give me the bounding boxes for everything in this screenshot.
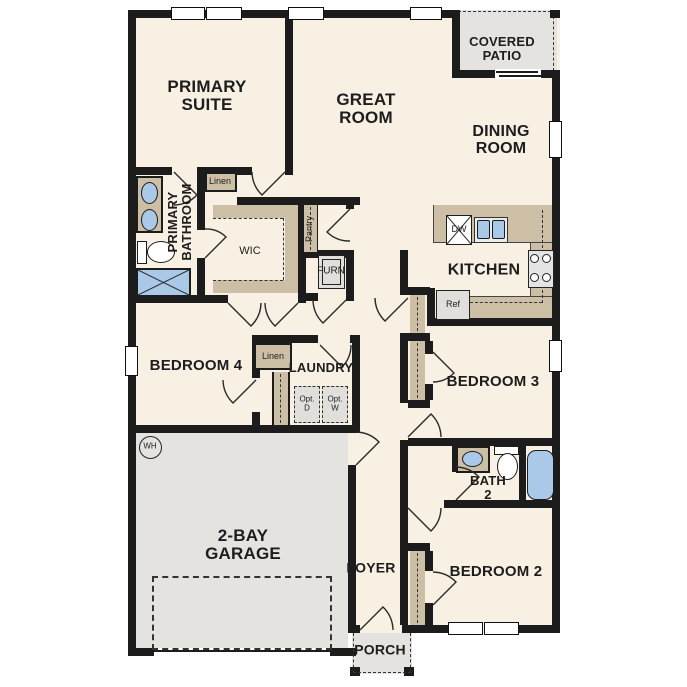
door-swing-path <box>228 303 261 326</box>
door-swing-path <box>360 607 393 630</box>
label-dishwasher: DW <box>452 225 467 235</box>
room-label-garage: 2-BAY GARAGE <box>205 527 281 563</box>
door-swing-path <box>408 508 441 531</box>
room-label-foyer: FOYER <box>346 561 395 576</box>
room-label-bedroom4: BEDROOM 4 <box>150 358 243 374</box>
room-label-dining-room: DINING ROOM <box>472 123 529 157</box>
room-label-primary-suite: PRIMARY SUITE <box>167 78 246 114</box>
label-refrigerator: Ref <box>446 300 460 310</box>
room-label-wic: WIC <box>239 246 260 258</box>
door-swing-path <box>375 298 408 321</box>
door-swing-path <box>138 270 189 295</box>
label-opt-washer: Opt. W <box>327 395 342 412</box>
door-swing-path <box>356 432 379 465</box>
door-swing-path <box>205 229 226 258</box>
label-pantry: Pantry <box>305 216 315 242</box>
door-swing-path <box>252 172 285 195</box>
room-label-bath2: BATH 2 <box>470 474 506 502</box>
room-label-kitchen: KITCHEN <box>448 261 521 278</box>
label-linen-primary: Linen <box>209 177 231 187</box>
room-label-great-room: GREAT ROOM <box>336 91 395 127</box>
label-opt-dryer: Opt. D <box>299 395 314 412</box>
door-swing-path <box>327 209 350 241</box>
room-label-bedroom3: BEDROOM 3 <box>447 374 540 390</box>
door-swing-path <box>408 414 441 437</box>
label-water-heater: WH <box>143 443 156 452</box>
door-swing-path <box>223 380 256 403</box>
door-swing-path <box>265 303 298 326</box>
door-swing-path <box>313 300 346 323</box>
floor-plan: PRIMARY SUITE GREAT ROOM COVERED PATIO D… <box>0 0 687 687</box>
label-linen-hall: Linen <box>262 352 284 362</box>
room-label-bedroom2: BEDROOM 2 <box>450 564 543 580</box>
room-label-porch: PORCH <box>354 643 406 658</box>
label-furnace: FURN <box>317 267 345 278</box>
room-label-primary-bathroom: PRIMARY BATHROOM <box>166 183 194 260</box>
room-label-laundry: LAUNDRY <box>289 361 353 375</box>
room-label-covered-patio: COVERED PATIO <box>469 35 535 63</box>
